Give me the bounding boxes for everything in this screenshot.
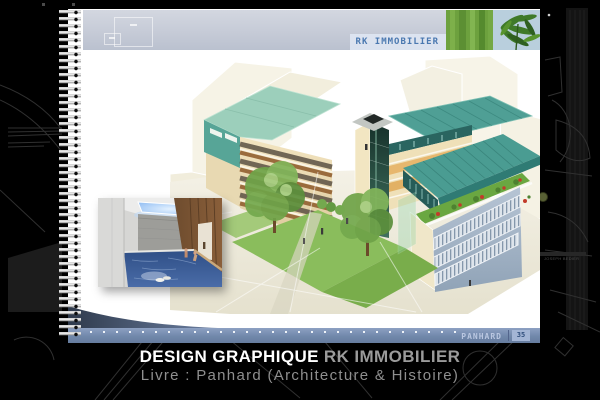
brand-text: RK IMMOBILIER (356, 37, 446, 47)
caption-title-gray: RK IMMOBILIER (324, 347, 460, 366)
page: RK IMMOBILIER (68, 9, 540, 343)
header-deco-box-small (104, 33, 121, 45)
caption-subtitle: Livre : Panhard (Architecture & Histoire… (0, 367, 600, 384)
caption-title-white: DESIGN GRAPHIQUE (140, 347, 319, 366)
caption-title: DESIGN GRAPHIQUERK IMMOBILIER (0, 347, 600, 366)
page-number-badge: 35 (512, 330, 530, 341)
building-rendering (170, 52, 540, 315)
footer-project-label: PANHARD (461, 332, 502, 341)
spiral-binding (59, 10, 81, 337)
brand-panel: RK IMMOBILIER (350, 34, 446, 50)
plant-photo (446, 10, 540, 50)
portfolio-screenshot: JOSEPH BEDIER RK IMMOBILIER (0, 0, 600, 400)
pool-inset (98, 198, 222, 287)
street-label: JOSEPH BEDIER (544, 257, 579, 262)
page-footer-bar: PANHARD 35 (68, 328, 540, 343)
caption: DESIGN GRAPHIQUERK IMMOBILIER Livre : Pa… (0, 347, 600, 384)
page-header-bar: RK IMMOBILIER (83, 10, 446, 50)
page-curl-shadow (68, 300, 218, 328)
footer-separator (508, 330, 509, 341)
footer-dots (90, 331, 462, 333)
